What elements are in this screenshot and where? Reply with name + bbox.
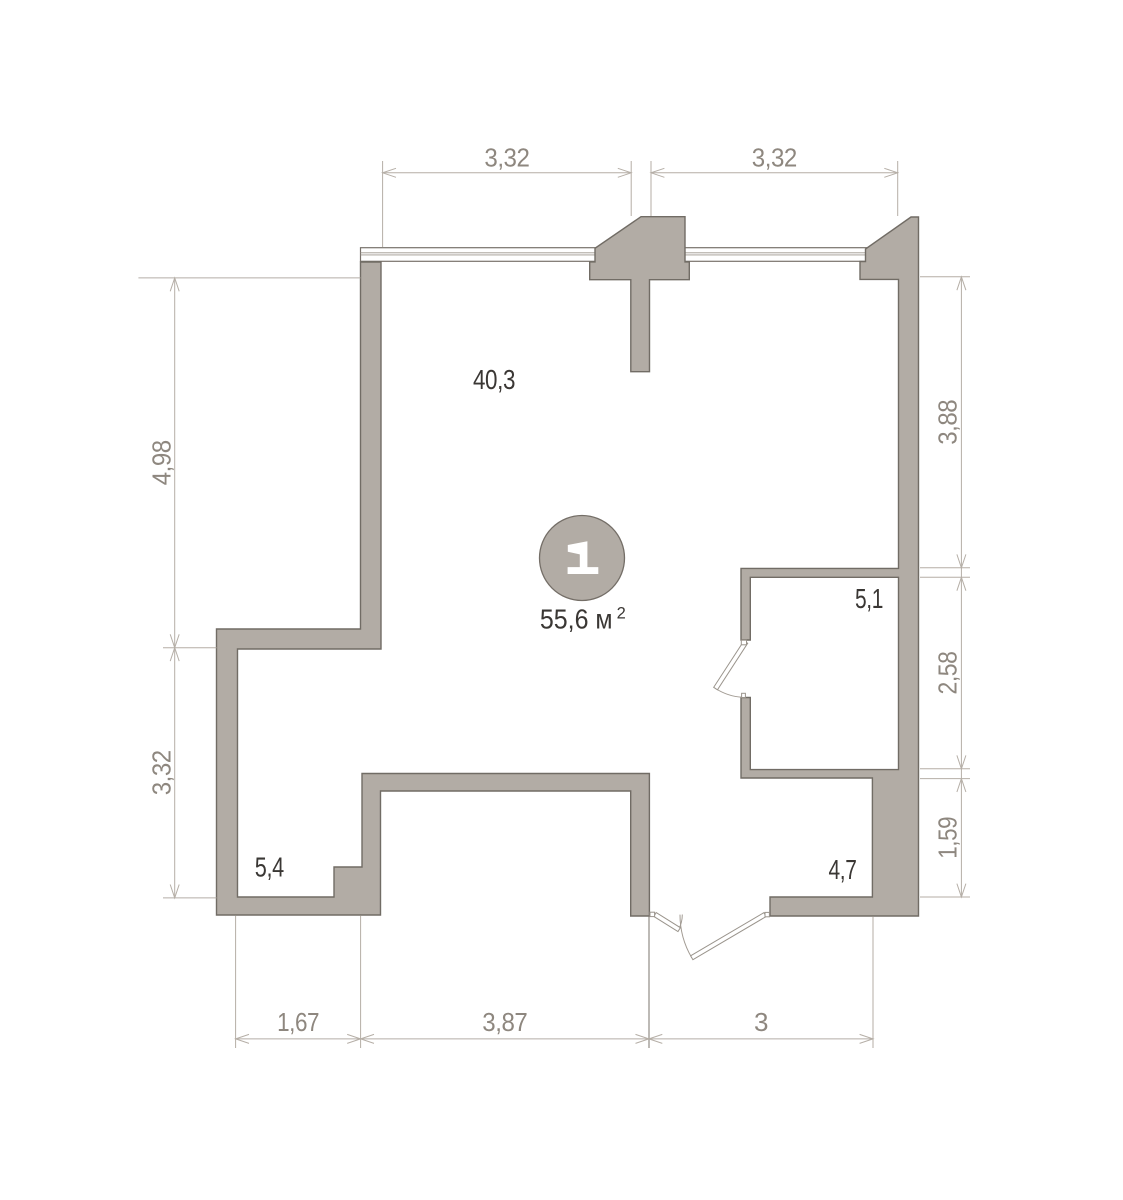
- svg-text:4,7: 4,7: [829, 854, 857, 885]
- svg-text:5,4: 5,4: [255, 852, 284, 883]
- svg-text:1,67: 1,67: [277, 1007, 319, 1037]
- svg-text:3,87: 3,87: [482, 1007, 527, 1037]
- svg-text:3,88: 3,88: [932, 400, 962, 445]
- svg-text:2: 2: [617, 605, 626, 623]
- svg-text:3: 3: [754, 1007, 768, 1037]
- svg-text:4,98: 4,98: [146, 440, 176, 485]
- svg-text:3,32: 3,32: [752, 142, 797, 172]
- svg-text:55,6 м: 55,6 м: [540, 603, 613, 634]
- svg-text:40,3: 40,3: [473, 364, 515, 395]
- svg-text:2,58: 2,58: [932, 651, 962, 694]
- svg-text:5,1: 5,1: [855, 583, 883, 614]
- svg-text:3,32: 3,32: [484, 142, 529, 172]
- svg-text:1,59: 1,59: [932, 817, 962, 859]
- svg-text:3,32: 3,32: [146, 750, 176, 795]
